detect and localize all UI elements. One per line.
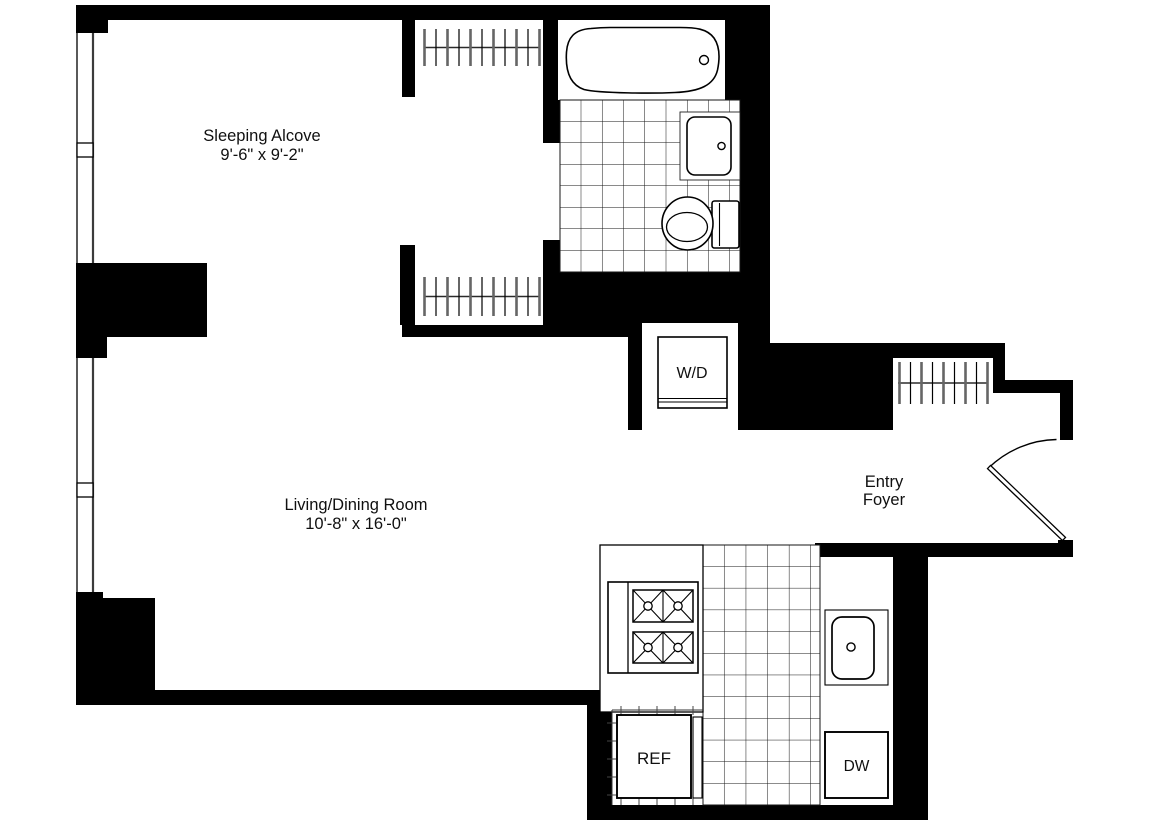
wall-mid-left-block-step	[76, 337, 107, 358]
dishwasher: DW	[825, 732, 888, 798]
wall-kitchen-bottom	[587, 805, 928, 820]
toilet-bowl-inner	[667, 213, 708, 242]
refrigerator-label: REF	[637, 749, 671, 768]
wall-mid-left-block	[76, 263, 207, 337]
entry-door	[988, 440, 1066, 541]
bathroom-sink	[680, 112, 740, 180]
toilet-tank	[712, 201, 739, 248]
refrigerator: REF	[617, 715, 702, 798]
stove	[608, 582, 698, 673]
floor-plan-svg: W/D	[0, 0, 1150, 825]
wall-closet-bottom	[402, 325, 557, 337]
refrigerator-side-panel	[693, 717, 702, 798]
kitchen-sink-drain	[847, 643, 855, 651]
washer-dryer: W/D	[658, 337, 727, 408]
floor-plan-canvas: W/D	[0, 0, 1150, 825]
wall-wd-left-bar	[628, 330, 642, 430]
living-dining-dimensions: 10'-8" x 16'-0"	[305, 515, 407, 533]
living-dining-label: Living/Dining Room	[284, 496, 427, 514]
dishwasher-label: DW	[844, 758, 870, 775]
closet-rod-bottom	[424, 277, 540, 316]
wall-foyer-top	[740, 343, 1005, 358]
washer-dryer-label: W/D	[676, 365, 707, 382]
entry-foyer-label-line1: Entry	[865, 473, 904, 491]
door-leaf	[988, 465, 1066, 540]
wall-entry-closet-right	[993, 358, 1005, 393]
sink-faucet	[718, 142, 725, 149]
window-mullion	[77, 143, 93, 157]
sleeping-alcove-label: Sleeping Alcove	[203, 127, 320, 145]
window-mullion	[77, 483, 93, 497]
bathtub	[566, 28, 719, 94]
wall-closet-left-bottom	[400, 245, 415, 325]
door-swing-arc	[989, 440, 1057, 468]
window-living-room	[77, 358, 93, 592]
tub-drain	[700, 56, 709, 65]
kitchen-tile-floor	[703, 545, 820, 805]
wall-exterior-step	[1005, 380, 1073, 393]
closet-rod-entry	[898, 362, 988, 404]
kitchen: REF DW	[600, 545, 888, 805]
wall-door-jamb-bottom	[1058, 540, 1073, 557]
wall-living-bottom	[76, 690, 612, 705]
wall-top	[76, 5, 770, 20]
toilet	[662, 197, 739, 250]
wall-foyer-bottom	[815, 543, 1073, 557]
wall-foyer-mass	[740, 358, 893, 430]
closet-rod-top	[424, 29, 540, 66]
bathroom-door-opening	[543, 143, 560, 240]
sleeping-alcove-dimensions: 9'-6" x 9'-2"	[220, 146, 303, 164]
wall-bottom-left-block	[76, 592, 103, 705]
wall-door-jamb-top	[1060, 393, 1073, 440]
window-sleeping-alcove	[77, 33, 93, 263]
wall-top-left-corner	[76, 5, 108, 33]
entry-foyer-label-line2: Foyer	[863, 491, 906, 509]
kitchen-sink	[825, 610, 888, 685]
wall-kitchen-right	[893, 557, 928, 820]
wall-bottom-left-block-step	[103, 598, 155, 705]
wall-closet-left-top	[402, 20, 415, 97]
wall-kitchen-left	[587, 705, 612, 820]
